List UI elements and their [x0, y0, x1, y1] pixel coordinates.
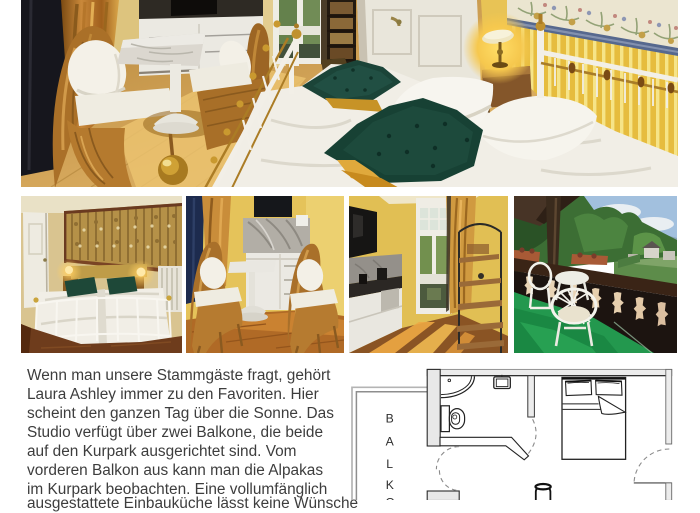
svg-text:O: O [385, 495, 394, 500]
svg-text:L: L [386, 457, 393, 471]
svg-text:A: A [386, 434, 395, 448]
svg-text:B: B [386, 411, 394, 425]
svg-text:K: K [386, 478, 394, 492]
